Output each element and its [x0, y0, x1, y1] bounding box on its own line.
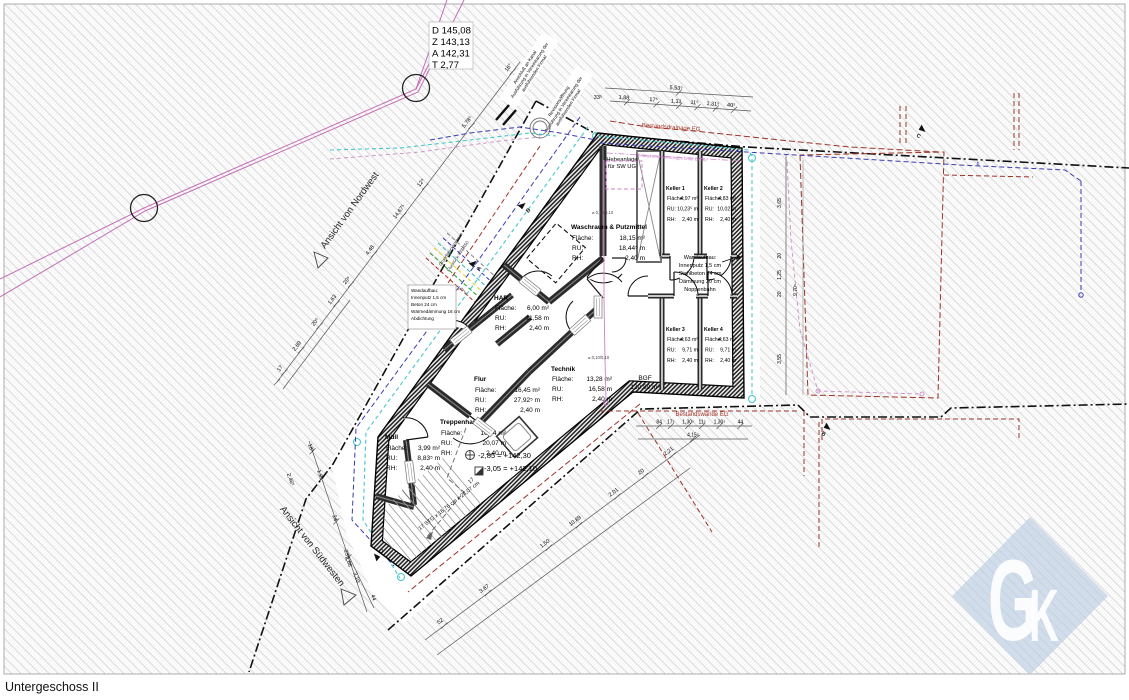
- svg-text:2,40 m: 2,40 m: [420, 465, 440, 472]
- svg-text:RU:: RU:: [386, 455, 397, 462]
- svg-text:Hebeanlage: Hebeanlage: [606, 157, 637, 163]
- svg-text:Fläche:: Fläche:: [552, 376, 574, 383]
- svg-text:Keller 3: Keller 3: [666, 327, 685, 333]
- svg-text:17⁵: 17⁵: [667, 420, 675, 426]
- svg-text:130,89 m²: 130,89 m²: [630, 384, 660, 391]
- svg-text:8,83⁵ m: 8,83⁵ m: [417, 455, 440, 462]
- svg-text:3,99 m²: 3,99 m²: [418, 445, 441, 452]
- svg-text:16,58 m: 16,58 m: [589, 386, 613, 393]
- svg-text:20: 20: [777, 253, 783, 259]
- svg-text:RH:: RH:: [667, 358, 676, 364]
- svg-text:20,07 m: 20,07 m: [483, 440, 507, 447]
- svg-text:RU:: RU:: [552, 386, 563, 393]
- svg-text:RH:: RH:: [386, 465, 397, 472]
- svg-text:RH:: RH:: [552, 396, 563, 403]
- svg-text:1,30⁵: 1,30⁵: [682, 420, 694, 426]
- svg-text:Stahlbeton 24 cm: Stahlbeton 24 cm: [679, 271, 722, 277]
- svg-text:2,40 m: 2,40 m: [720, 217, 736, 223]
- svg-text:1,31: 1,31: [671, 99, 682, 106]
- svg-text:Fläche:: Fläche:: [386, 445, 408, 452]
- svg-text:Wandaufbau:: Wandaufbau:: [411, 288, 438, 293]
- svg-text:11⁵: 11⁵: [690, 99, 698, 107]
- svg-text:HAR: HAR: [494, 295, 508, 302]
- svg-text:Z 143,13: Z 143,13: [432, 37, 470, 48]
- svg-text:Noppenbahn: Noppenbahn: [684, 287, 716, 293]
- svg-text:Wandaufbau:: Wandaufbau:: [684, 255, 717, 261]
- svg-text:Fläche:: Fläche:: [475, 387, 497, 394]
- svg-text:33⁵: 33⁵: [594, 94, 602, 101]
- svg-text:6,00 m²: 6,00 m²: [527, 305, 550, 312]
- svg-text:-3,05 = +142,10: -3,05 = +142,10: [484, 464, 537, 473]
- svg-text:A 142,31: A 142,31: [432, 49, 470, 60]
- svg-text:Fläche:: Fläche:: [495, 305, 517, 312]
- svg-text:RU:: RU:: [495, 315, 506, 322]
- svg-text:Flur: Flur: [474, 376, 487, 383]
- svg-text:4,15⁵: 4,15⁵: [687, 433, 699, 439]
- svg-text:RH:: RH:: [705, 217, 714, 223]
- svg-text:RH:: RH:: [495, 325, 506, 332]
- svg-text:Untergeschoss II: Untergeschoss II: [5, 680, 99, 694]
- svg-text:1,31⁵: 1,31⁵: [706, 100, 719, 108]
- svg-text:RH:: RH:: [667, 217, 676, 223]
- svg-text:9,71 m: 9,71 m: [682, 348, 698, 354]
- svg-text:84: 84: [656, 420, 662, 426]
- svg-text:9,71 m: 9,71 m: [720, 348, 736, 354]
- svg-text:BGF: BGF: [638, 375, 651, 382]
- svg-text:18,15 m²: 18,15 m²: [619, 235, 645, 242]
- svg-text:2,40 m: 2,40 m: [625, 255, 645, 262]
- svg-text:5,53⁵: 5,53⁵: [669, 84, 682, 92]
- svg-text:Fläche:: Fläche:: [441, 430, 463, 437]
- svg-text:-2,85 = +142,30: -2,85 = +142,30: [478, 451, 531, 460]
- svg-text:Wärmedämmung 16 cm: Wärmedämmung 16 cm: [411, 309, 460, 314]
- svg-text:40⁵: 40⁵: [727, 102, 736, 110]
- svg-text:2,40 m: 2,40 m: [520, 407, 540, 414]
- svg-text:Waschraum & Putzmittel: Waschraum & Putzmittel: [571, 224, 647, 231]
- svg-text:RU:: RU:: [441, 440, 452, 447]
- svg-text:D 145,08: D 145,08: [432, 26, 471, 37]
- svg-text:1,88: 1,88: [618, 95, 629, 102]
- svg-text:RU:: RU:: [667, 348, 676, 354]
- svg-text:20: 20: [777, 291, 783, 297]
- svg-text:Abdichtung: Abdichtung: [411, 316, 434, 321]
- svg-text:2,40 m: 2,40 m: [592, 396, 612, 403]
- svg-text:RH:: RH:: [475, 407, 486, 414]
- svg-text:RU:: RU:: [705, 348, 714, 354]
- svg-text:Innenputz 1,5 cm: Innenputz 1,5 cm: [411, 295, 446, 300]
- svg-text:10,23⁵ m: 10,23⁵ m: [677, 207, 698, 213]
- svg-text:RH:: RH:: [441, 450, 452, 457]
- svg-text:Innenputz 1,5 cm: Innenputz 1,5 cm: [679, 263, 722, 269]
- svg-text:2,40 m: 2,40 m: [529, 325, 549, 332]
- svg-text:Keller 4: Keller 4: [704, 327, 723, 333]
- svg-text:RU:: RU:: [475, 397, 486, 404]
- svg-text:Fläche:: Fläche:: [572, 235, 594, 242]
- svg-text:1,30⁵: 1,30⁵: [714, 420, 726, 426]
- svg-text:RU:: RU:: [572, 245, 583, 252]
- svg-text:T 2,77: T 2,77: [432, 60, 459, 71]
- svg-text:RU:: RU:: [705, 207, 714, 213]
- svg-text:9,70⁵: 9,70⁵: [793, 284, 799, 296]
- svg-text:⌀ 0,10/0,10: ⌀ 0,10/0,10: [588, 355, 610, 360]
- svg-text:Beton 24 cm: Beton 24 cm: [411, 302, 437, 307]
- svg-text:13,28 m²: 13,28 m²: [586, 376, 612, 383]
- svg-text:Müll: Müll: [385, 434, 398, 441]
- svg-text:11,58 m: 11,58 m: [526, 315, 549, 322]
- svg-text:RH:: RH:: [572, 255, 583, 262]
- svg-text:18,44⁵ m: 18,44⁵ m: [619, 245, 645, 252]
- svg-text:für SW UG: für SW UG: [608, 164, 637, 170]
- svg-text:2,40 m: 2,40 m: [682, 358, 698, 364]
- svg-text:RH:: RH:: [705, 358, 714, 364]
- svg-text:3,65: 3,65: [777, 198, 783, 208]
- svg-text:4,63 m²: 4,63 m²: [718, 337, 736, 343]
- svg-text:27,92⁵ m: 27,92⁵ m: [514, 397, 540, 404]
- svg-text:44: 44: [738, 420, 744, 426]
- svg-text:4,83 m²: 4,83 m²: [718, 196, 736, 202]
- svg-text:b: b: [977, 161, 980, 167]
- svg-text:4,63 m²: 4,63 m²: [680, 337, 698, 343]
- svg-text:11⁵: 11⁵: [698, 420, 705, 426]
- svg-text:16,45 m²: 16,45 m²: [514, 387, 540, 394]
- svg-text:1,25: 1,25: [777, 270, 783, 280]
- svg-text:4,97 m²: 4,97 m²: [680, 196, 698, 202]
- svg-text:10,02 m: 10,02 m: [717, 207, 736, 213]
- svg-text:RU:: RU:: [667, 207, 676, 213]
- svg-text:2,40 m: 2,40 m: [720, 358, 736, 364]
- svg-text:Dämmung 20 cm: Dämmung 20 cm: [679, 279, 721, 285]
- svg-text:K: K: [1029, 574, 1059, 657]
- svg-text:Keller 1: Keller 1: [666, 186, 685, 192]
- svg-text:17⁵: 17⁵: [649, 96, 658, 104]
- svg-text:Technik: Technik: [551, 366, 575, 373]
- svg-text:Bestandswände EG: Bestandswände EG: [675, 412, 728, 418]
- svg-text:Keller 2: Keller 2: [704, 186, 723, 192]
- svg-text:3,55: 3,55: [777, 354, 783, 364]
- svg-text:2,40 m: 2,40 m: [682, 217, 698, 223]
- svg-text:⌀ 0,10/0,10: ⌀ 0,10/0,10: [592, 210, 614, 215]
